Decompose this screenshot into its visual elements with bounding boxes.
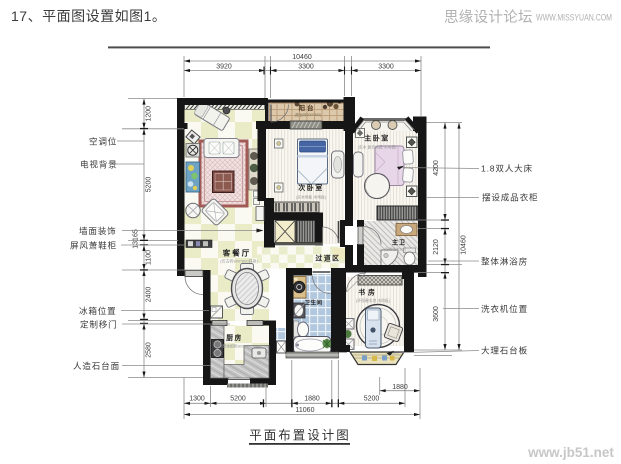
svg-text:1200: 1200: [146, 106, 153, 122]
svg-text:2580: 2580: [146, 342, 153, 358]
svg-text:书房: 书房: [358, 288, 378, 297]
svg-text:客餐厅: 客餐厅: [222, 248, 252, 258]
svg-text:(整体橱柜800*600*700): (整体橱柜800*600*700): [221, 344, 261, 349]
svg-text:摆设成品衣柜: 摆设成品衣柜: [482, 192, 538, 203]
svg-text:(环保硬木地 木地板): (环保硬木地 木地板): [356, 298, 391, 303]
svg-text:屏风萧鞋柜: 屏风萧鞋柜: [70, 240, 117, 251]
svg-text:2120: 2120: [433, 239, 440, 255]
svg-text:(实木地板 木地板): (实木地板 木地板): [296, 195, 327, 200]
svg-text:1880: 1880: [304, 396, 320, 403]
svg-text:冰箱位置: 冰箱位置: [79, 305, 117, 316]
svg-text:1300: 1300: [189, 396, 205, 403]
svg-text:5200: 5200: [146, 177, 153, 193]
svg-text:3300: 3300: [378, 64, 394, 71]
svg-text:2400: 2400: [146, 287, 153, 303]
svg-text:13165: 13165: [133, 229, 140, 249]
svg-text:3920: 3920: [216, 64, 232, 71]
svg-text:5200: 5200: [230, 396, 246, 403]
svg-text:www.jb51.net: www.jb51.net: [527, 445, 614, 460]
svg-text:洗衣机位置: 洗衣机位置: [481, 303, 528, 314]
svg-text:人造石台面: 人造石台面: [73, 360, 120, 371]
svg-text:主卫: 主卫: [392, 239, 406, 247]
svg-text:3600: 3600: [433, 306, 440, 322]
svg-text:WWW.MISSYUAN.COM: WWW.MISSYUAN.COM: [536, 13, 612, 23]
svg-text:空调位: 空调位: [89, 136, 117, 147]
svg-text:厨房: 厨房: [226, 333, 243, 342]
svg-text:5200: 5200: [364, 396, 380, 403]
svg-text:1880: 1880: [392, 384, 408, 391]
svg-text:阳台: 阳台: [299, 103, 316, 112]
svg-text:墙面装饰: 墙面装饰: [79, 225, 117, 236]
svg-text:11060: 11060: [296, 407, 315, 414]
svg-text:定制移门: 定制移门: [80, 319, 118, 330]
svg-text:10460: 10460: [461, 235, 468, 255]
svg-text:整体淋浴房: 整体淋浴房: [481, 256, 528, 267]
svg-text:17、平面图设置如图1。: 17、平面图设置如图1。: [11, 8, 166, 24]
svg-text:思缘设计论坛: 思缘设计论坛: [444, 9, 533, 26]
svg-text:次卧室: 次卧室: [298, 183, 324, 192]
svg-text:(仿古砖800*800斜拼): (仿古砖800*800斜拼): [220, 258, 258, 264]
svg-text:电视背景: 电视背景: [80, 159, 118, 170]
svg-text:(阳台砖300*300): (阳台砖300*300): [295, 112, 322, 117]
svg-text:过道区: 过道区: [316, 254, 341, 263]
svg-text:3300: 3300: [298, 64, 314, 71]
svg-text:平面布置设计图: 平面布置设计图: [249, 428, 351, 443]
svg-text:(防滑地砖300): (防滑地砖300): [384, 247, 406, 252]
svg-text:10460: 10460: [292, 54, 312, 61]
svg-text:1100: 1100: [146, 250, 153, 265]
svg-text:卫生间: 卫生间: [304, 299, 322, 307]
svg-text:1.8双人大床: 1.8双人大床: [481, 163, 533, 174]
svg-text:(实木 复合地板 木地板): (实木 复合地板 木地板): [358, 145, 398, 150]
svg-text:主卧室: 主卧室: [364, 134, 390, 143]
svg-text:大理石台板: 大理石台板: [481, 345, 528, 356]
